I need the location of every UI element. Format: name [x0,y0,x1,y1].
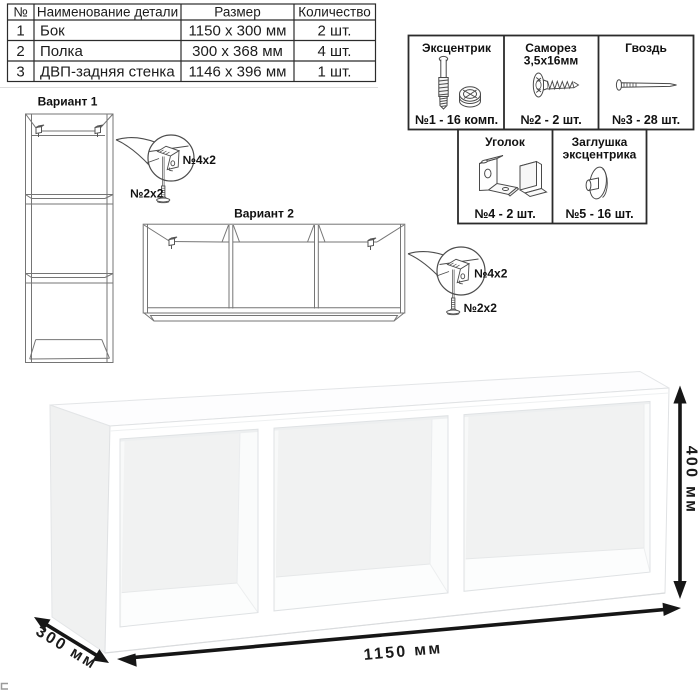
svg-text:1150 x 300 мм: 1150 x 300 мм [189,23,287,40]
svg-text:№4x2: №4x2 [474,267,508,281]
svg-text:№4x2: №4x2 [183,153,217,167]
svg-text:1146 x 396 мм: 1146 x 396 мм [189,64,287,81]
svg-text:3,5x16мм: 3,5x16мм [524,54,579,68]
svg-text:300 x 368 мм: 300 x 368 мм [192,43,283,60]
svg-text:№2x2: №2x2 [464,301,498,315]
svg-text:Бок: Бок [40,23,65,40]
svg-text:№4 - 2 шт.: №4 - 2 шт. [474,207,535,221]
svg-text:1150 мм: 1150 мм [363,640,443,664]
svg-text:№1 - 16 комп.: №1 - 16 комп. [415,113,498,127]
svg-text:400 мм: 400 мм [683,446,700,515]
svg-text:Вариант 1: Вариант 1 [38,95,98,109]
svg-text:№2 - 2 шт.: №2 - 2 шт. [520,113,581,127]
svg-text:2 шт.: 2 шт. [318,23,352,40]
svg-text:№5 - 16 шт.: №5 - 16 шт. [565,207,633,221]
svg-text:Полка: Полка [40,43,83,60]
svg-text:Уголок: Уголок [485,135,526,149]
svg-text:Вариант 2: Вариант 2 [234,207,294,221]
svg-text:3: 3 [16,64,24,81]
svg-text:2: 2 [16,43,24,60]
svg-text:Гвоздь: Гвоздь [625,41,667,55]
svg-text:№2x2: №2x2 [130,187,164,201]
svg-text:№3 - 28 шт.: №3 - 28 шт. [612,113,680,127]
svg-text:ДВП-задняя стенка: ДВП-задняя стенка [40,64,175,81]
svg-text:№: № [13,5,27,20]
svg-text:1: 1 [16,23,24,40]
svg-text:1 шт.: 1 шт. [318,64,352,81]
svg-text:4 шт.: 4 шт. [318,43,352,60]
svg-text:Количество: Количество [298,5,371,20]
svg-text:Размер: Размер [214,5,260,20]
svg-text:Наименование детали: Наименование детали [37,5,178,20]
svg-text:эксцентрика: эксцентрика [563,148,637,162]
svg-text:Эксцентрик: Эксцентрик [422,41,492,55]
